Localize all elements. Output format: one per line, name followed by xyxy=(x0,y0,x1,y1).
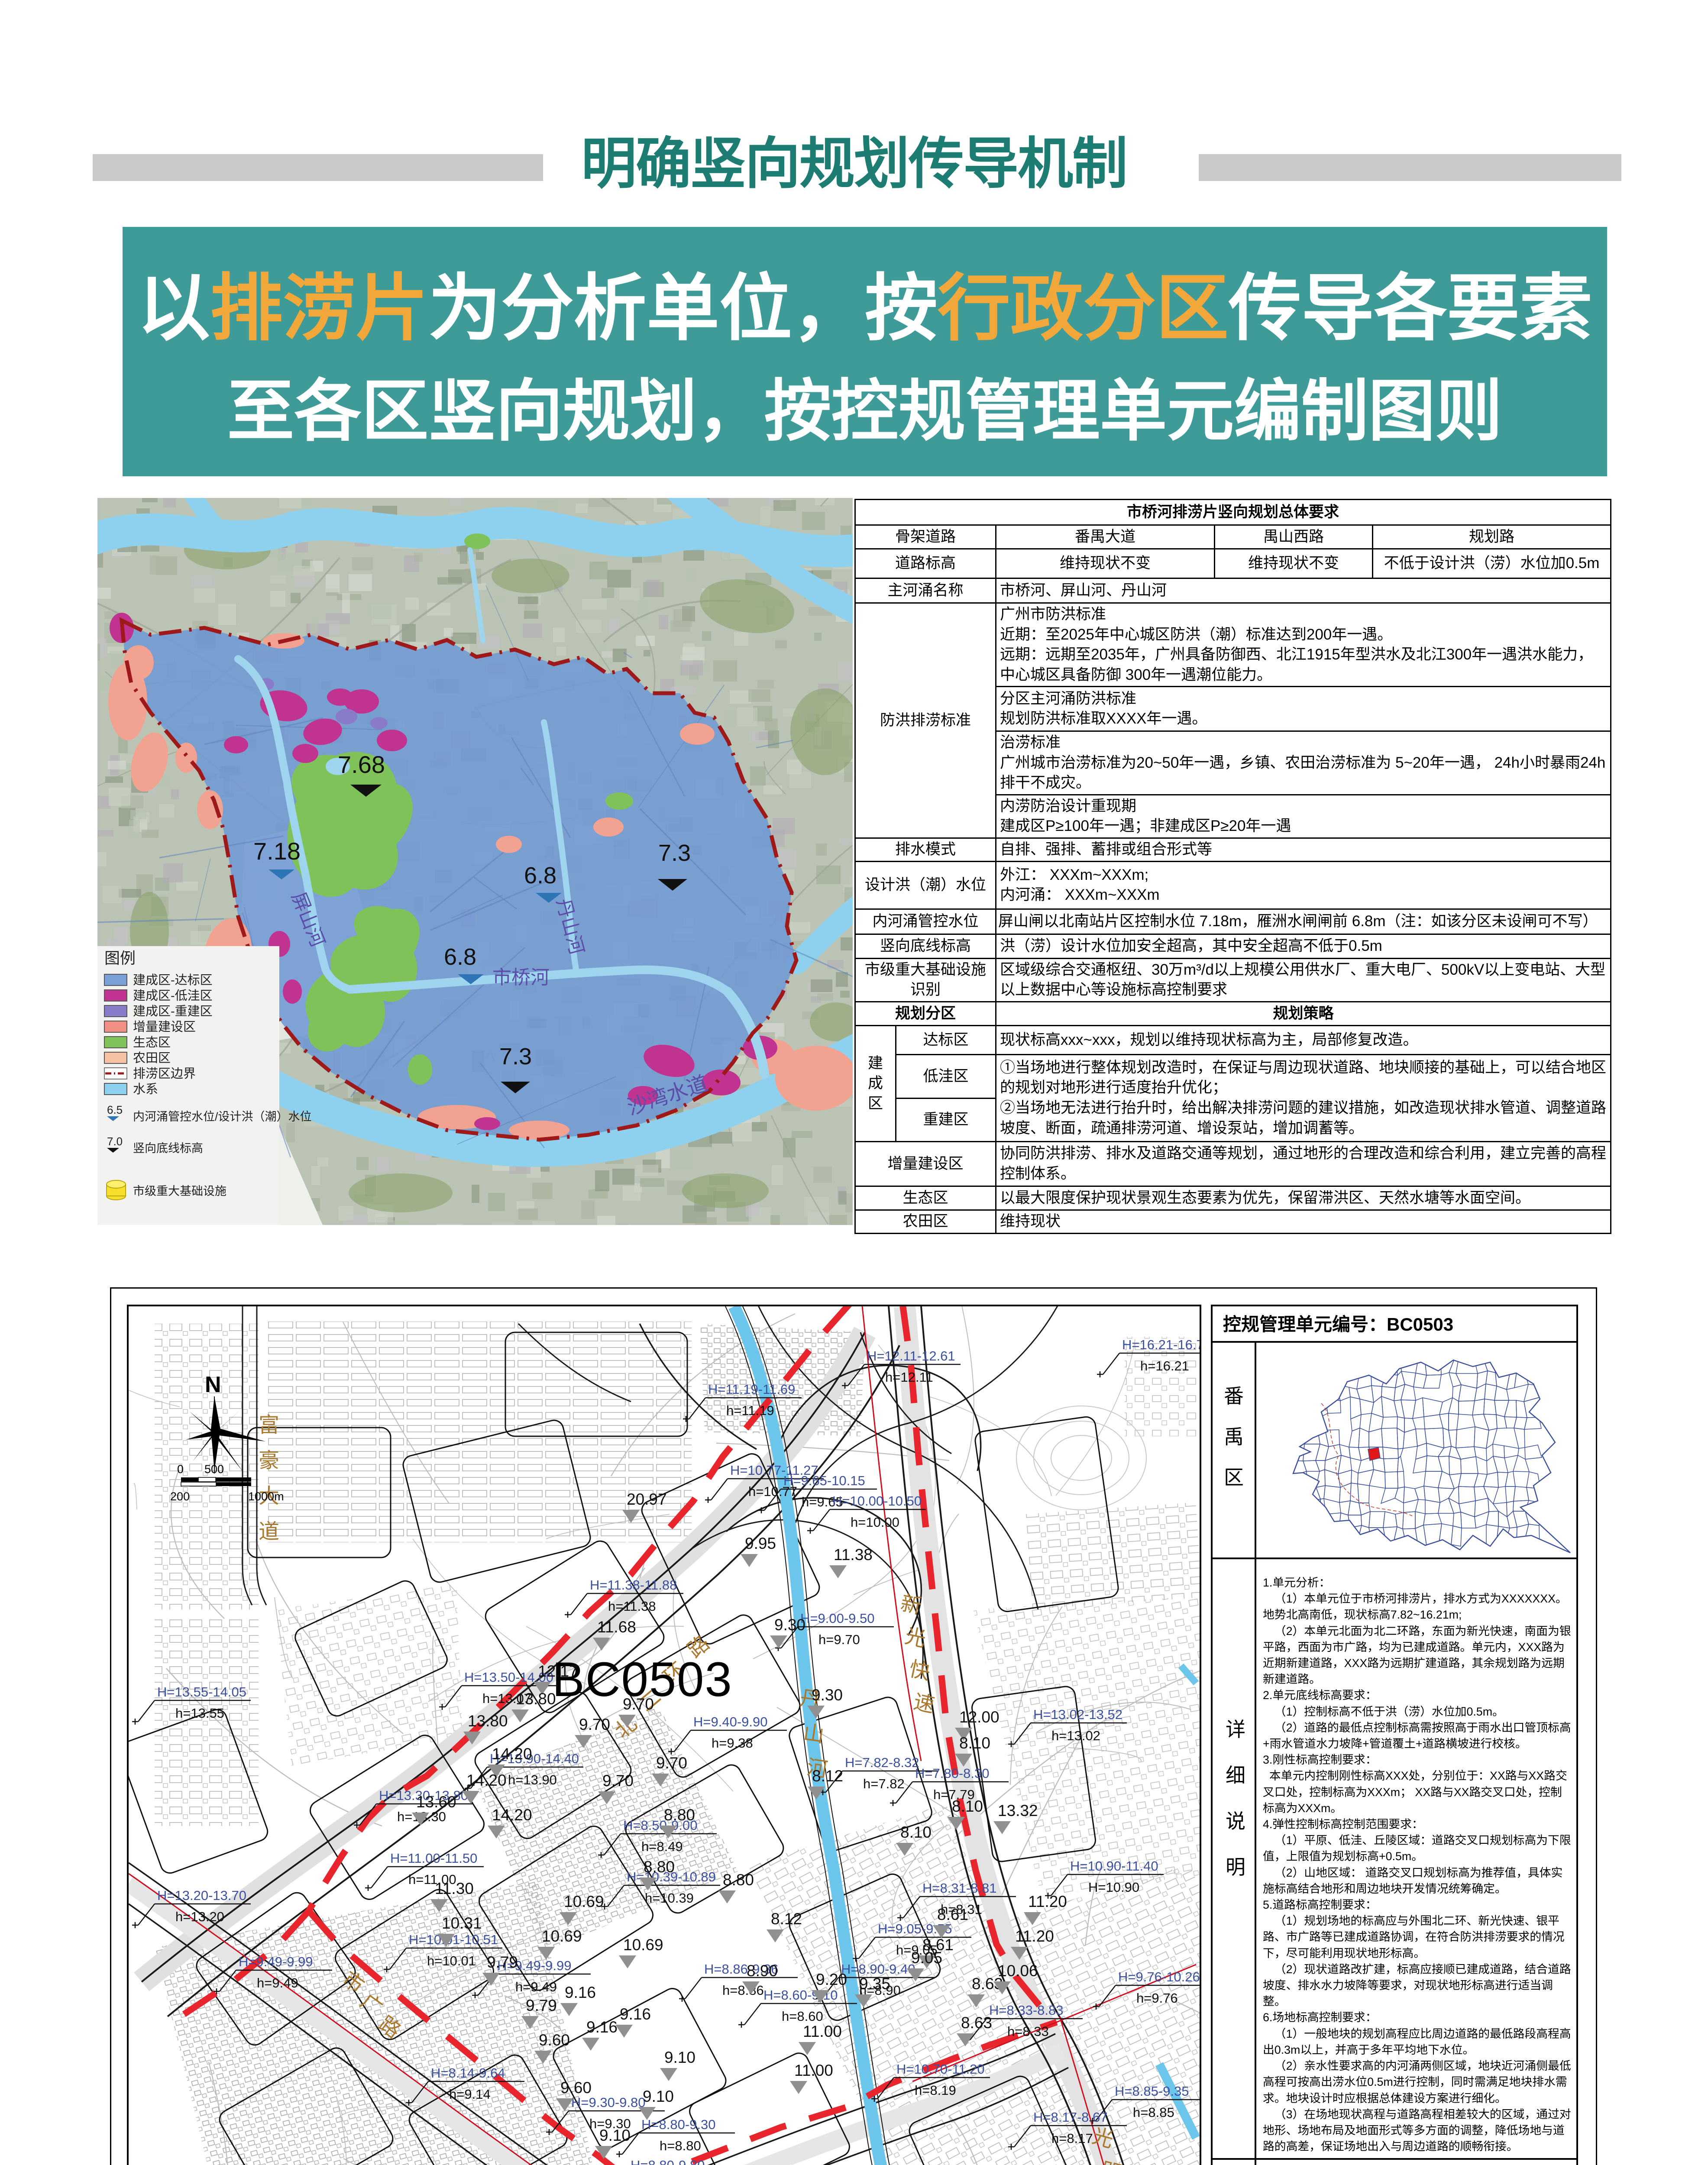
svg-text:0: 0 xyxy=(177,1463,184,1476)
svg-text:11.00: 11.00 xyxy=(794,2062,833,2079)
svg-text:11.20: 11.20 xyxy=(1028,1893,1067,1910)
svg-text:H=13.02-13.52: H=13.02-13.52 xyxy=(1033,1707,1122,1722)
svg-text:H=9.40-9.90: H=9.40-9.90 xyxy=(693,1714,767,1729)
svg-text:9.60: 9.60 xyxy=(560,2079,592,2097)
svg-text:豪: 豪 xyxy=(259,1449,279,1472)
svg-text:h=9.38: h=9.38 xyxy=(712,1735,753,1751)
svg-text:11.38: 11.38 xyxy=(834,1546,873,1564)
svg-text:8.80: 8.80 xyxy=(664,1806,695,1824)
svg-text:h=10.00: h=10.00 xyxy=(851,1515,899,1530)
svg-text:山: 山 xyxy=(802,1721,825,1747)
svg-text:竖向底线标高: 竖向底线标高 xyxy=(133,1142,203,1155)
svg-text:10.06: 10.06 xyxy=(998,1962,1038,1980)
svg-text:H=11.38-11.88: H=11.38-11.88 xyxy=(590,1577,677,1593)
svg-text:H=9.00-9.50: H=9.00-9.50 xyxy=(800,1611,874,1626)
svg-text:建成区-达标区: 建成区-达标区 xyxy=(133,973,213,987)
svg-text:H=8.80-9.80: H=8.80-9.80 xyxy=(631,2158,705,2165)
svg-text:7.3: 7.3 xyxy=(658,840,691,866)
svg-text:H=8.14-9.64: H=8.14-9.64 xyxy=(431,2065,505,2081)
svg-text:H=7.82-8.32: H=7.82-8.32 xyxy=(845,1755,919,1770)
svg-text:9.60: 9.60 xyxy=(539,2031,570,2049)
svg-text:7.3: 7.3 xyxy=(499,1044,532,1070)
svg-text:7.18: 7.18 xyxy=(253,837,301,865)
svg-text:9.30: 9.30 xyxy=(812,1686,843,1704)
svg-text:13.80: 13.80 xyxy=(468,1712,508,1730)
svg-text:h=9.49: h=9.49 xyxy=(257,1975,298,1991)
svg-text:H=11.19-11.69: H=11.19-11.69 xyxy=(708,1382,795,1397)
svg-text:14.20: 14.20 xyxy=(492,1806,532,1824)
svg-text:H=16.21-16.71: H=16.21-16.71 xyxy=(1122,1337,1200,1352)
svg-text:8.10: 8.10 xyxy=(900,1823,932,1841)
svg-text:建成区-重建区: 建成区-重建区 xyxy=(133,1004,213,1018)
svg-text:H=10.90-11.40: H=10.90-11.40 xyxy=(1070,1858,1158,1874)
svg-text:9.20: 9.20 xyxy=(816,1971,847,1988)
svg-text:图例: 图例 xyxy=(104,949,136,967)
svg-text:h=8.85: h=8.85 xyxy=(1133,2105,1174,2120)
svg-text:道: 道 xyxy=(259,1520,279,1543)
svg-text:h=8.49: h=8.49 xyxy=(641,1839,683,1854)
svg-text:20.97: 20.97 xyxy=(627,1490,667,1508)
svg-text:H=7.80-8.30: H=7.80-8.30 xyxy=(915,1766,989,1781)
svg-text:7.0: 7.0 xyxy=(107,1135,123,1148)
svg-text:h=9.49: h=9.49 xyxy=(515,1979,557,1994)
svg-text:13.60: 13.60 xyxy=(416,1793,456,1811)
svg-text:8.12: 8.12 xyxy=(771,1910,802,1928)
svg-text:排涝区边界: 排涝区边界 xyxy=(133,1066,196,1081)
svg-text:10.31: 10.31 xyxy=(442,1914,482,1932)
svg-text:H=13.20-13.70: H=13.20-13.70 xyxy=(157,1888,246,1903)
svg-text:200: 200 xyxy=(170,1490,190,1503)
svg-text:h=8.86: h=8.86 xyxy=(722,1983,764,1998)
svg-text:6.5: 6.5 xyxy=(107,1103,123,1116)
svg-text:h=8.60: h=8.60 xyxy=(782,2009,823,2024)
svg-text:H=10.00-10.50: H=10.00-10.50 xyxy=(832,1493,922,1509)
svg-text:h=13.20: h=13.20 xyxy=(175,1909,224,1924)
svg-text:生态区: 生态区 xyxy=(133,1035,171,1050)
svg-text:1000m: 1000m xyxy=(248,1490,284,1503)
svg-text:9.70: 9.70 xyxy=(656,1754,687,1772)
svg-text:6.8: 6.8 xyxy=(524,863,556,889)
svg-text:11.68: 11.68 xyxy=(597,1618,636,1636)
svg-text:H=8.60-9.10: H=8.60-9.10 xyxy=(763,1987,838,2003)
svg-text:9.70: 9.70 xyxy=(579,1716,610,1733)
svg-text:10.69: 10.69 xyxy=(542,1927,582,1945)
svg-text:N: N xyxy=(205,1372,221,1397)
svg-text:9.70: 9.70 xyxy=(623,1695,654,1713)
svg-text:市级重大基础设施: 市级重大基础设施 xyxy=(133,1185,226,1198)
svg-text:h=9.14: h=9.14 xyxy=(449,2087,491,2102)
svg-text:8.90: 8.90 xyxy=(747,1962,778,1980)
svg-text:h=10.01: h=10.01 xyxy=(427,1953,476,1968)
svg-text:9.35: 9.35 xyxy=(859,1975,890,1993)
svg-text:H=9.30-9.80: H=9.30-9.80 xyxy=(571,2095,645,2110)
svg-text:12.00: 12.00 xyxy=(959,1708,1000,1726)
svg-text:13.80: 13.80 xyxy=(516,1690,556,1708)
svg-text:h=7.82: h=7.82 xyxy=(863,1776,905,1791)
svg-text:h=9.76: h=9.76 xyxy=(1136,1991,1178,2006)
svg-text:水系: 水系 xyxy=(133,1082,158,1096)
svg-text:12.17: 12.17 xyxy=(538,1662,578,1680)
svg-text:500: 500 xyxy=(204,1463,224,1476)
svg-text:9.10: 9.10 xyxy=(599,2126,631,2144)
svg-text:9.79: 9.79 xyxy=(526,1997,557,2014)
svg-text:9.16: 9.16 xyxy=(620,2005,651,2023)
svg-text:10.69: 10.69 xyxy=(564,1893,604,1910)
svg-text:H=11.00-11.50: H=11.00-11.50 xyxy=(390,1851,477,1866)
svg-text:内河涌管控水位/设计洪（潮）水位: 内河涌管控水位/设计洪（潮）水位 xyxy=(133,1110,312,1123)
svg-text:7.68: 7.68 xyxy=(338,751,385,778)
svg-text:H=13.55-14.05: H=13.55-14.05 xyxy=(157,1684,246,1700)
svg-text:H=8.85-9.35: H=8.85-9.35 xyxy=(1115,2084,1189,2099)
svg-text:建成区-低洼区: 建成区-低洼区 xyxy=(133,989,213,1003)
svg-text:h=10.39: h=10.39 xyxy=(645,1890,694,1906)
svg-text:9.16: 9.16 xyxy=(586,2018,618,2036)
svg-text:h=11.38: h=11.38 xyxy=(608,1599,656,1614)
svg-text:9.30: 9.30 xyxy=(774,1616,805,1634)
svg-text:市桥河: 市桥河 xyxy=(492,967,550,988)
svg-text:h=12.11: h=12.11 xyxy=(885,1370,933,1385)
svg-text:增量建设区: 增量建设区 xyxy=(133,1020,196,1034)
svg-text:9.70: 9.70 xyxy=(602,1772,634,1790)
svg-text:8.10: 8.10 xyxy=(959,1734,990,1752)
svg-text:h=8.19: h=8.19 xyxy=(915,2083,956,2098)
svg-text:6.8: 6.8 xyxy=(444,944,476,970)
svg-text:h=9.70: h=9.70 xyxy=(818,1632,860,1647)
svg-text:h=13.55: h=13.55 xyxy=(175,1706,224,1721)
svg-text:H=12.11-12.61: H=12.11-12.61 xyxy=(867,1348,955,1364)
svg-text:9.10: 9.10 xyxy=(664,2049,695,2066)
svg-text:9.05: 9.05 xyxy=(911,1949,942,1967)
svg-text:h=13.02: h=13.02 xyxy=(1051,1728,1100,1743)
svg-text:8.63: 8.63 xyxy=(961,2014,992,2032)
svg-text:H=9.65-10.15: H=9.65-10.15 xyxy=(783,1473,865,1488)
svg-text:h=16.21: h=16.21 xyxy=(1140,1358,1189,1373)
svg-text:8.12: 8.12 xyxy=(812,1767,843,1785)
svg-text:14.20: 14.20 xyxy=(492,1745,532,1763)
svg-text:11.00: 11.00 xyxy=(803,2023,842,2040)
svg-text:H=8.80-9.30: H=8.80-9.30 xyxy=(641,2117,715,2132)
svg-text:H=8.17-8.67: H=8.17-8.67 xyxy=(1033,2110,1107,2125)
svg-text:富: 富 xyxy=(259,1414,279,1437)
svg-text:8.61: 8.61 xyxy=(937,1906,968,1923)
svg-text:10.69: 10.69 xyxy=(623,1936,663,1954)
svg-text:9.10: 9.10 xyxy=(643,2087,674,2105)
svg-text:11.20: 11.20 xyxy=(1015,1927,1054,1945)
svg-text:h=8.33: h=8.33 xyxy=(1007,2024,1049,2039)
svg-text:H=9.76-10.26: H=9.76-10.26 xyxy=(1118,1969,1200,1984)
svg-text:h=8.17: h=8.17 xyxy=(1051,2131,1093,2146)
svg-text:13.32: 13.32 xyxy=(998,1802,1038,1819)
svg-text:9.16: 9.16 xyxy=(565,1984,596,2001)
svg-text:8.80: 8.80 xyxy=(644,1858,675,1876)
svg-text:H=9.49-9.99: H=9.49-9.99 xyxy=(239,1954,313,1969)
svg-text:农田区: 农田区 xyxy=(133,1051,171,1065)
svg-text:H=8.90-9.40: H=8.90-9.40 xyxy=(841,1961,915,1977)
svg-text:h=11.19: h=11.19 xyxy=(726,1403,774,1418)
svg-text:9.95: 9.95 xyxy=(745,1535,776,1552)
svg-text:8.10: 8.10 xyxy=(952,1797,983,1815)
svg-text:8.80: 8.80 xyxy=(723,1871,754,1889)
svg-text:14.20: 14.20 xyxy=(466,1771,507,1789)
svg-text:H=8.33-8.83: H=8.33-8.83 xyxy=(989,2003,1063,2018)
svg-text:H=10.70-11.20: H=10.70-11.20 xyxy=(896,2062,985,2077)
svg-text:H=10.90: H=10.90 xyxy=(1088,1880,1139,1895)
svg-text:h=8.80: h=8.80 xyxy=(660,2138,701,2153)
svg-text:h=13.90: h=13.90 xyxy=(508,1772,557,1787)
svg-text:H=8.31-8.81: H=8.31-8.81 xyxy=(922,1881,996,1896)
svg-text:11.30: 11.30 xyxy=(435,1880,474,1897)
svg-text:9.79: 9.79 xyxy=(487,1953,518,1971)
